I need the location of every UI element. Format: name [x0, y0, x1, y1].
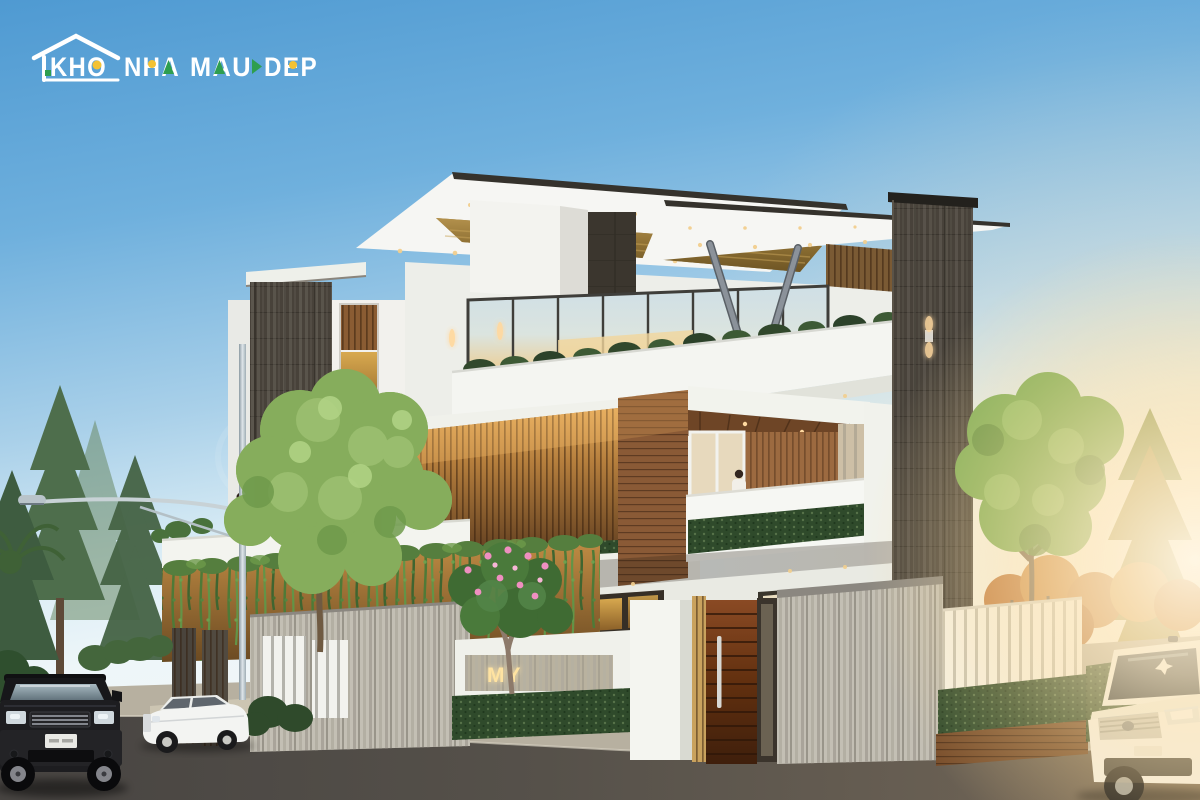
rooftop-volumes — [470, 200, 636, 300]
pier-sconce — [925, 316, 933, 358]
house-sign-wall: MY — [452, 630, 632, 740]
entrance-gate — [630, 596, 777, 764]
gate-handle — [717, 636, 722, 708]
facade-sconce — [497, 322, 503, 340]
illuminated-house-sign: MY — [487, 664, 523, 687]
wood-slat-fascia — [826, 244, 896, 292]
granite-fence-left — [240, 602, 470, 752]
rendering-canvas: MY — [0, 0, 1200, 800]
villa-scene: MY — [0, 0, 1200, 800]
facade-sconce — [449, 329, 455, 347]
sedan-grille — [143, 714, 151, 732]
wooden-gate-door — [706, 600, 757, 764]
